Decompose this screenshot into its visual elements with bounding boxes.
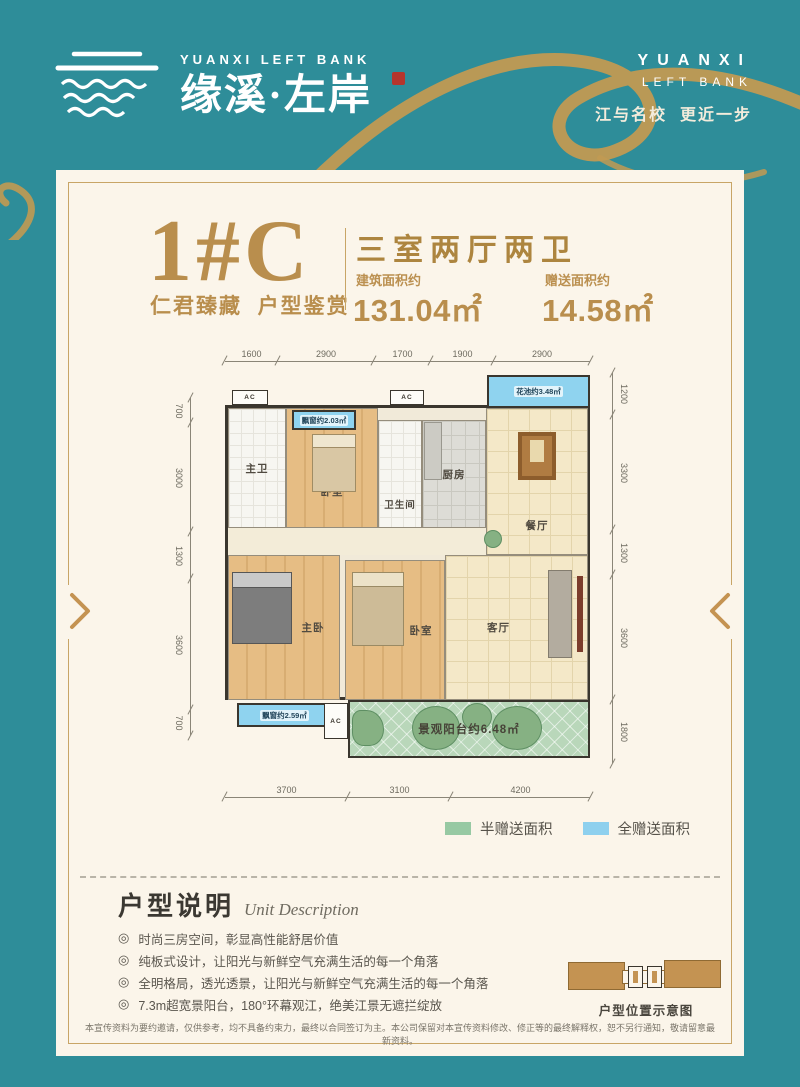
bullet-item: ◎纯板式设计，让阳光与新鲜空气充满生活的每一个角落 — [118, 949, 488, 971]
bullet-text: 时尚三房空间，彰显高性能舒居价值 — [138, 929, 338, 948]
chevron-left-icon[interactable] — [708, 592, 732, 630]
room-dining: 餐厅 — [486, 408, 588, 555]
bullet-icon: ◎ — [118, 974, 129, 990]
dim-label: 3300 — [619, 453, 629, 493]
dim-label: 3100 — [348, 785, 451, 795]
description-bullets: ◎时尚三房空间，彰显高性能舒居价值 ◎纯板式设计，让阳光与新鲜空气充满生活的每一… — [118, 927, 488, 1015]
location-caption: 户型位置示意图 — [568, 1000, 724, 1019]
dim-label: 1900 — [431, 349, 494, 359]
unit-position-marker — [647, 966, 662, 988]
legend-half-gift: 半赠送面积 — [445, 818, 553, 839]
dimension-line-bottom: 3700 3100 4200 — [225, 782, 590, 798]
dimension-line-top: 1600 2900 1700 1900 2900 — [225, 346, 590, 362]
room-label: 卫生间 — [384, 497, 416, 511]
flower-pool-label: 花池约3.48㎡ — [514, 386, 563, 397]
disclaimer-text: 本宣传资料为要约邀请，仅供参考，均不具备约束力，最终以合同签订为主。本公司保留对… — [84, 1022, 716, 1047]
bullet-item: ◎7.3m超宽景阳台，180°环幕观江，绝美江景无遮拦绽放 — [118, 993, 488, 1015]
legend-half-gift-label: 半赠送面积 — [480, 818, 553, 839]
dim-label: 1300 — [619, 533, 629, 573]
dim-label: 3600 — [174, 625, 184, 665]
room-master-bath: 主卫 — [228, 408, 286, 528]
hallway — [228, 528, 486, 555]
dimension-line-left: 700 3000 1300 3600 700 — [176, 398, 191, 735]
dim-label: 3600 — [619, 618, 629, 658]
brand-name-cn: 缘溪·左岸 — [180, 75, 372, 117]
brand-right-block: YUANXI LEFT BANK 江与名校 更近一步 — [595, 52, 752, 125]
header-divider — [345, 228, 346, 310]
building-block-right — [664, 960, 721, 988]
bullet-icon: ◎ — [118, 930, 129, 946]
bullet-icon: ◎ — [118, 996, 129, 1012]
bullet-item: ◎全明格局，透光透景，让阳光与新鲜空气充满生活的每一个角落 — [118, 971, 488, 993]
gift-area-value: 14.58㎡ — [542, 285, 654, 330]
room-label: 主卧 — [302, 620, 325, 635]
dim-label: 1300 — [174, 536, 184, 576]
brand-slogan: 江与名校 更近一步 — [595, 101, 752, 125]
bay-window-bottom-zone: 飘窗约2.59㎡ — [237, 703, 332, 727]
brand-name-en: YUANXI LEFT BANK — [180, 52, 372, 67]
bay-window-bottom-label: 飘窗约2.59㎡ — [260, 710, 309, 721]
ac-label: AC — [401, 394, 412, 401]
bullet-icon: ◎ — [118, 952, 129, 968]
bed-icon — [312, 434, 356, 492]
ac-label: AC — [330, 718, 341, 725]
dim-label: 1200 — [619, 374, 629, 414]
bay-window-top-label: 飘窗约2.03㎡ — [300, 415, 349, 426]
bed-icon — [352, 572, 404, 646]
build-area-value: 131.04㎡ — [353, 285, 482, 330]
dim-label: 3000 — [174, 458, 184, 498]
bay-window-top-zone: 飘窗约2.03㎡ — [292, 410, 356, 430]
plant-icon — [484, 530, 502, 548]
chevron-right-icon[interactable] — [68, 592, 92, 630]
dim-label: 700 — [174, 703, 184, 743]
legend-full-gift-label: 全赠送面积 — [618, 818, 691, 839]
unit-tagline: 仁君臻藏 户型鉴赏 — [150, 290, 350, 320]
room-label: 餐厅 — [526, 518, 549, 533]
tv-cabinet-icon — [577, 576, 583, 652]
legend-blue-swatch — [583, 822, 609, 835]
bullet-text: 纯板式设计，让阳光与新鲜空气充满生活的每一个角落 — [138, 951, 438, 970]
dim-label: 1700 — [374, 349, 431, 359]
ac-unit-icon: AC — [324, 703, 348, 739]
description-title: 户型说明Unit Description — [118, 886, 359, 923]
unit-position-marker — [628, 966, 643, 988]
dim-label: 2900 — [494, 349, 590, 359]
brand-logo: YUANXI LEFT BANK 缘溪·左岸 — [50, 46, 372, 128]
room-label: 客厅 — [487, 620, 510, 635]
dining-table-icon — [518, 432, 556, 480]
unit-code: 1#C — [148, 208, 312, 296]
ac-unit-icon: AC — [390, 390, 424, 405]
room-label: 厨房 — [443, 467, 466, 482]
dashed-divider — [80, 876, 720, 878]
dim-label: 3700 — [225, 785, 348, 795]
description-title-en: Unit Description — [244, 900, 359, 919]
legend-green-swatch — [445, 822, 471, 835]
ac-unit-icon: AC — [232, 390, 268, 405]
dim-label: 1800 — [619, 712, 629, 752]
plan-legend: 半赠送面积 全赠送面积 — [445, 818, 690, 839]
dimension-line-right: 1200 3300 1300 3600 1800 — [612, 373, 627, 763]
flower-pool-zone: 花池约3.48㎡ — [487, 375, 590, 408]
brand-right-line1: YUANXI — [595, 52, 752, 70]
sofa-icon — [548, 570, 572, 658]
legend-full-gift: 全赠送面积 — [583, 818, 691, 839]
brand-right-line2: LEFT BANK — [595, 75, 752, 89]
layout-title: 三室两厅两卫 — [356, 225, 578, 269]
bed-icon — [232, 572, 292, 644]
dim-label: 4200 — [451, 785, 590, 795]
bullet-text: 7.3m超宽景阳台，180°环幕观江，绝美江景无遮拦绽放 — [138, 995, 442, 1014]
brand-seal — [392, 72, 405, 85]
poster-page: YUANXI LEFT BANK 缘溪·左岸 YUANXI LEFT BANK … — [0, 0, 800, 1087]
dim-label: 1600 — [225, 349, 278, 359]
room-bathroom: 卫生间 — [378, 420, 422, 528]
bullet-text: 全明格局，透光透景，让阳光与新鲜空气充满生活的每一个角落 — [138, 973, 488, 992]
bullet-item: ◎时尚三房空间，彰显高性能舒居价值 — [118, 927, 488, 949]
dim-label: 2900 — [278, 349, 374, 359]
room-label: 主卫 — [246, 461, 269, 476]
ac-label: AC — [244, 394, 255, 401]
description-title-cn: 户型说明 — [118, 891, 234, 921]
plant-icon — [352, 710, 384, 746]
building-block-left — [568, 962, 625, 990]
kitchen-counter-icon — [424, 422, 442, 480]
balcony-label: 景观阳台约6.48㎡ — [418, 721, 519, 737]
wave-logo-icon — [50, 46, 162, 128]
room-label: 卧室 — [410, 623, 433, 638]
floorplan-card: 1#C 仁君臻藏 户型鉴赏 三室两厅两卫 建筑面积约 131.04㎡ 赠送面积约… — [56, 170, 744, 1056]
